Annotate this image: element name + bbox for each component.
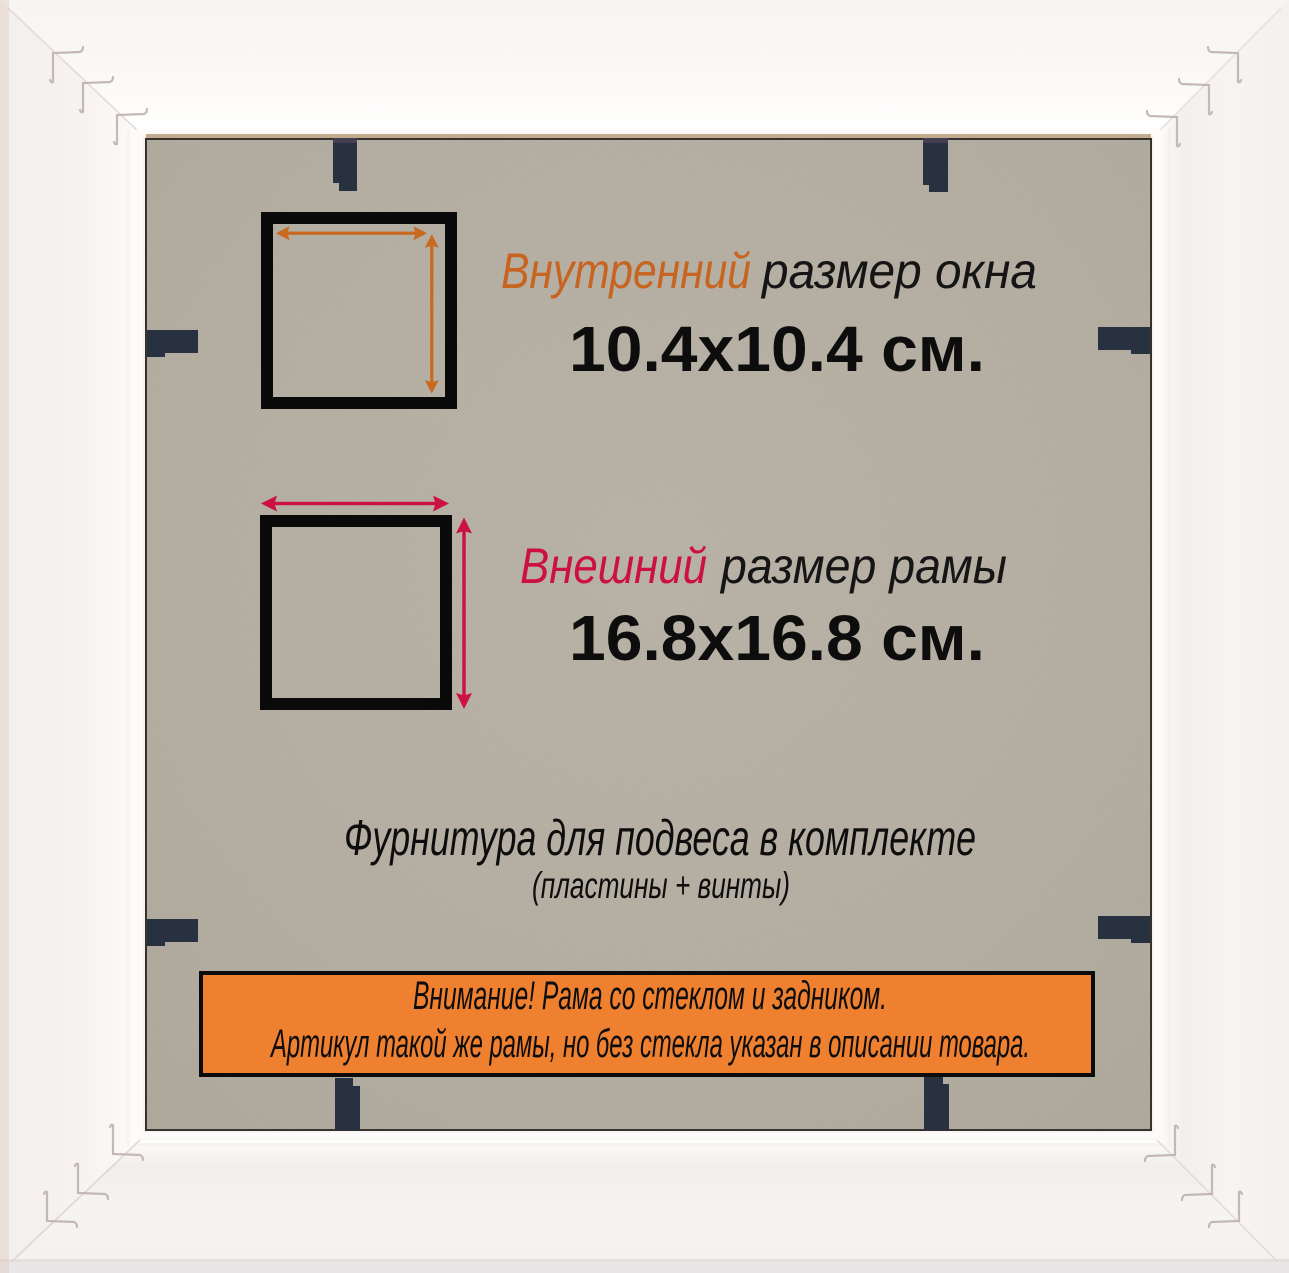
svg-text:размер окна: размер окна	[760, 243, 1037, 299]
svg-text:Внутренний: Внутренний	[501, 243, 751, 299]
svg-text:16.8x16.8 см.: 16.8x16.8 см.	[569, 602, 985, 674]
svg-text:размер рамы: размер рамы	[719, 538, 1007, 594]
svg-text:10.4x10.4 см.: 10.4x10.4 см.	[569, 313, 985, 385]
svg-text:Внешний: Внешний	[520, 538, 707, 594]
svg-text:Артикул такой же рамы, но без: Артикул такой же рамы, но без стекла ука…	[270, 1022, 1030, 1066]
svg-text:Внимание! Рама со стеклом и за: Внимание! Рама со стеклом и задником.	[413, 974, 887, 1018]
svg-text:Фурнитура для подвеса в компле: Фурнитура для подвеса в комплекте	[344, 810, 976, 866]
svg-text:(пластины + винты): (пластины + винты)	[532, 865, 790, 906]
